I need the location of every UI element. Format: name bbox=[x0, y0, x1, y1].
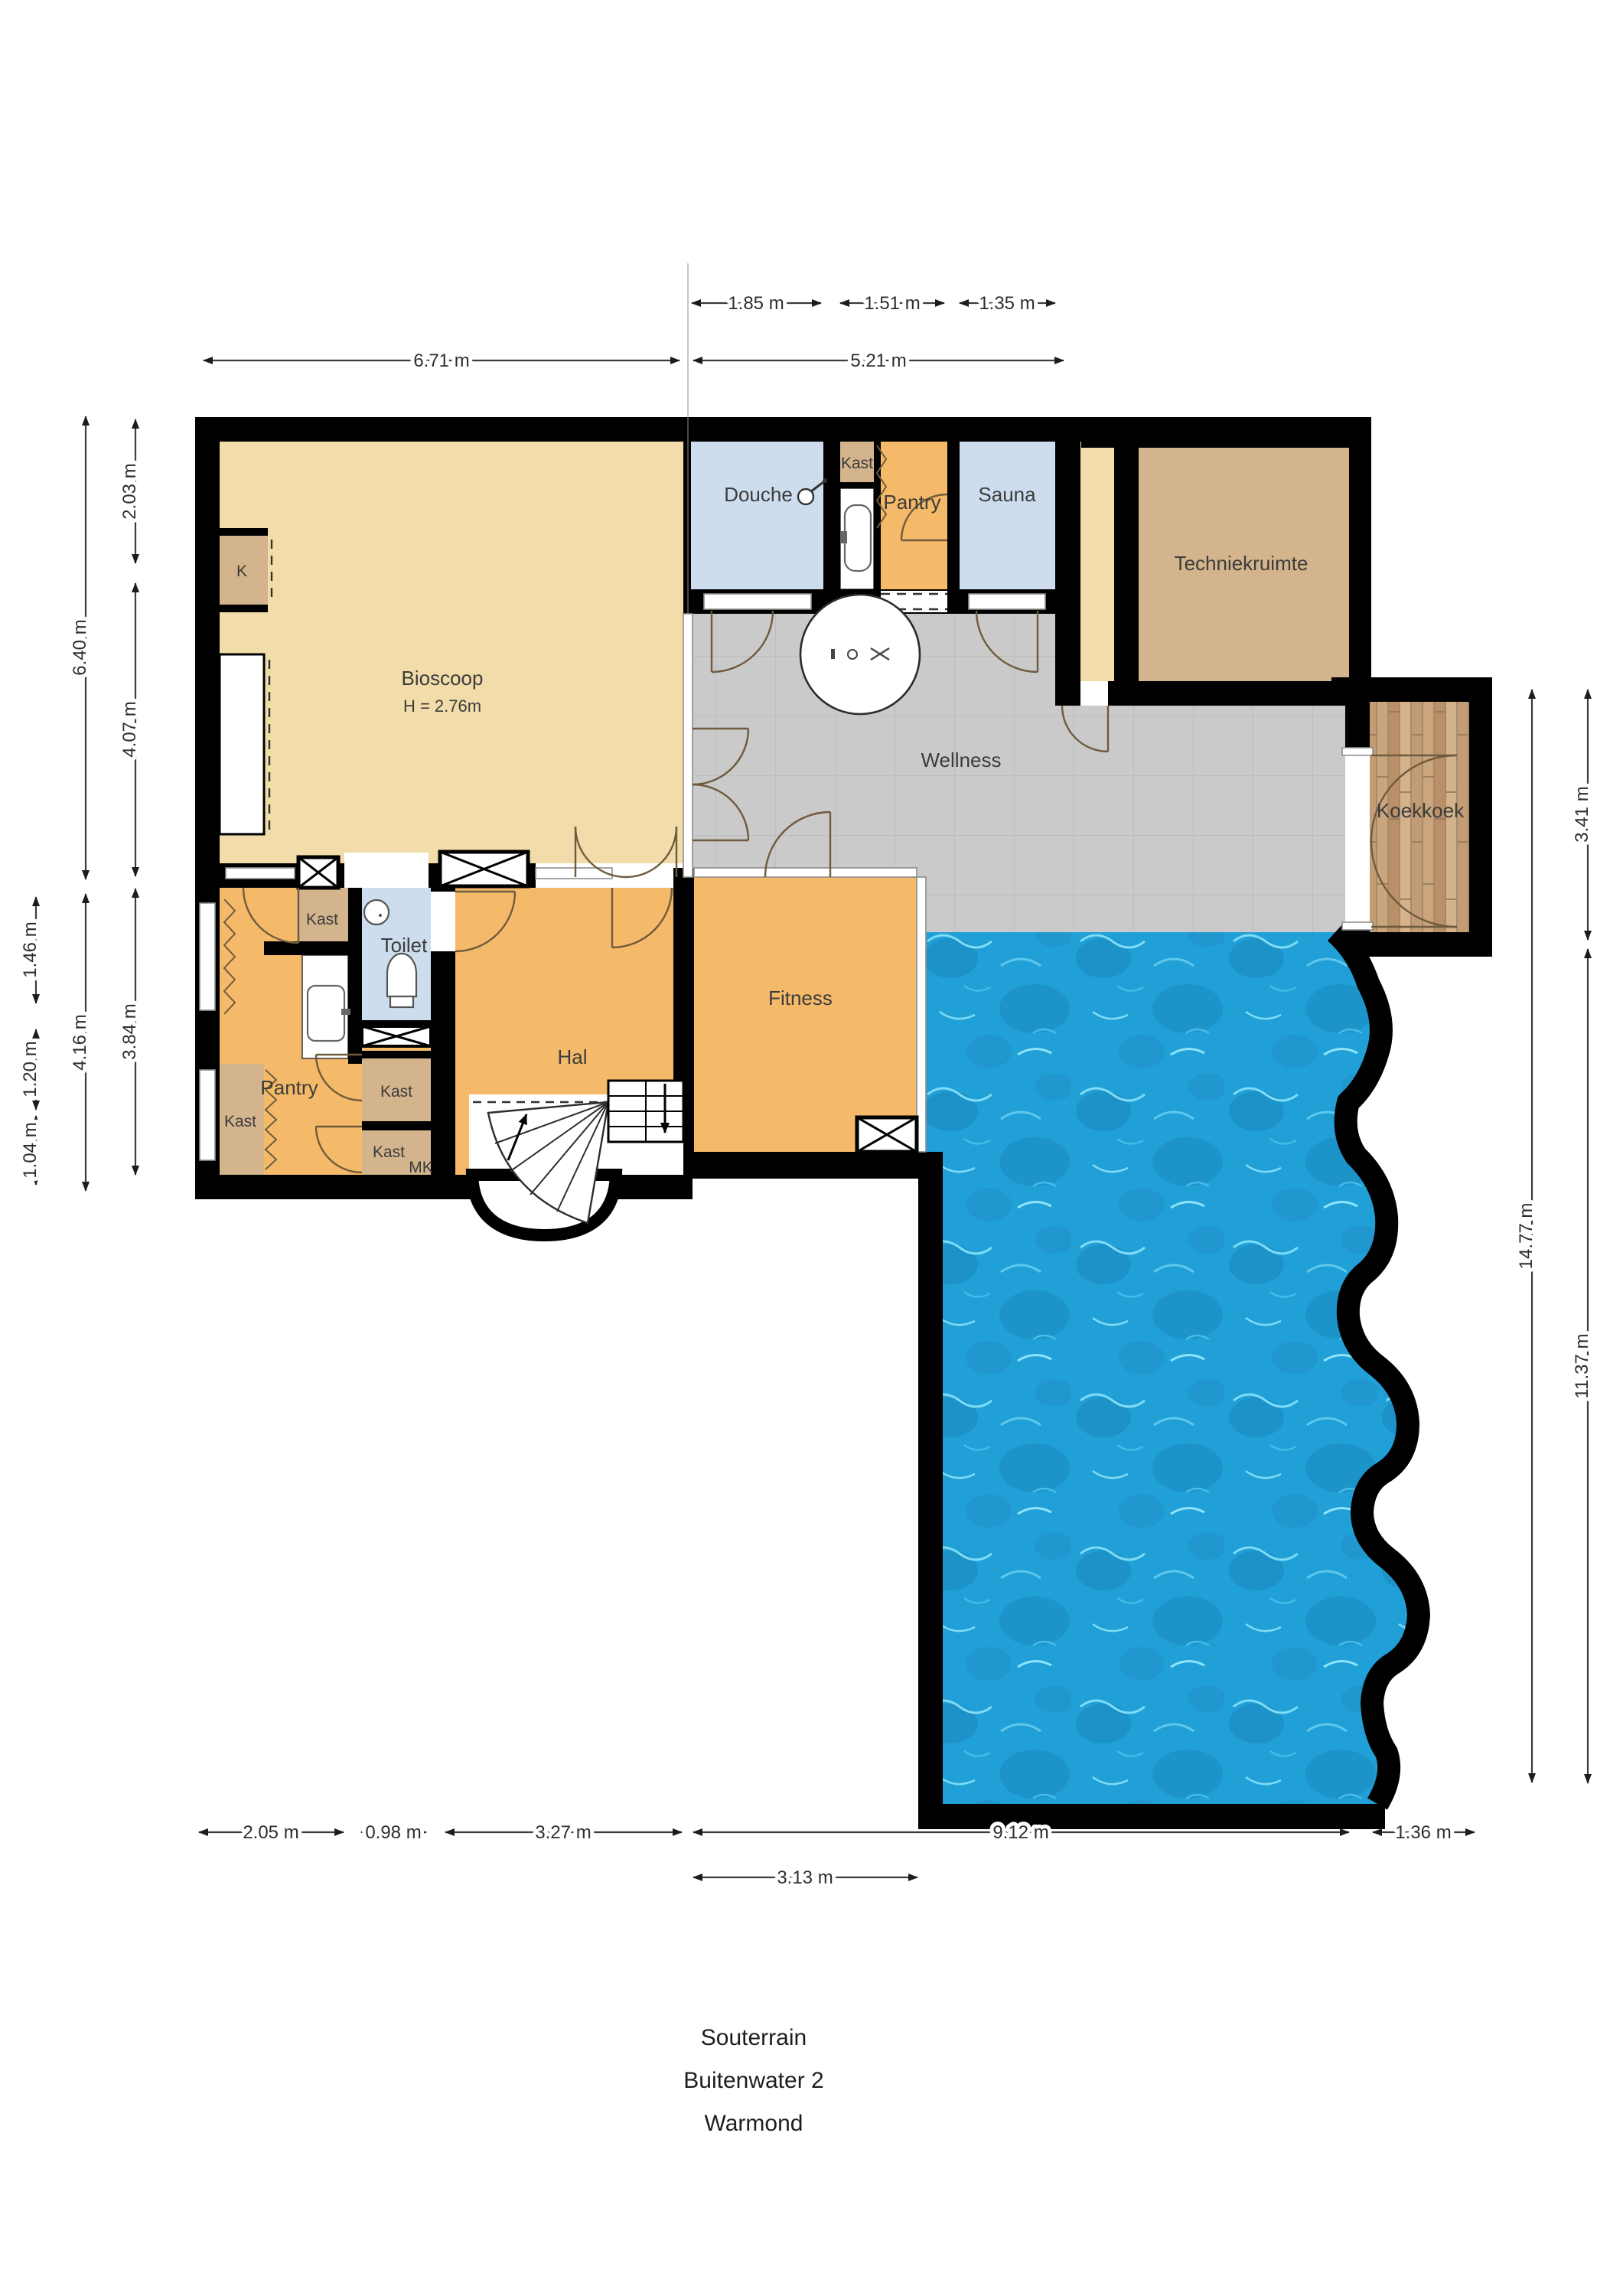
dimension: 3.41 m bbox=[1572, 690, 1592, 940]
toilet-door-gap bbox=[431, 892, 455, 951]
room-sauna-floor bbox=[960, 442, 1055, 589]
washbasin-icon bbox=[840, 505, 871, 571]
wall-segment bbox=[1331, 677, 1492, 702]
straight-stair-icon bbox=[608, 1081, 683, 1142]
svg-text:0.98 m: 0.98 m bbox=[365, 1822, 421, 1843]
room-label-pantry-boven: Pantry bbox=[883, 491, 940, 514]
dimension: 5.21 m bbox=[693, 351, 1064, 371]
svg-text:9.12 m: 9.12 m bbox=[992, 1822, 1048, 1843]
vent-shaft-icon bbox=[362, 1026, 431, 1046]
wall-segment bbox=[918, 1179, 943, 1829]
room-label-kast-midden: Kast bbox=[380, 1083, 412, 1101]
dimension: 1.04 m bbox=[20, 1116, 41, 1185]
svg-text:1.35 m: 1.35 m bbox=[979, 293, 1035, 314]
title-city: Warmond bbox=[705, 2111, 803, 2136]
room-label-hal: Hal bbox=[557, 1045, 587, 1068]
dimension: 4.07 m bbox=[119, 583, 140, 876]
wall-segment bbox=[220, 605, 268, 612]
svg-text:1.36 m: 1.36 m bbox=[1395, 1822, 1451, 1843]
wall-segment bbox=[362, 1121, 431, 1130]
dimension: 3.84 m bbox=[119, 889, 140, 1175]
wall-segment bbox=[264, 941, 348, 955]
vent-shaft-icon bbox=[857, 1117, 917, 1152]
room-label-fitness: Fitness bbox=[768, 987, 833, 1009]
vent-shaft-icon bbox=[298, 857, 338, 888]
wall-segment bbox=[823, 442, 840, 589]
vestibule-door-gap bbox=[1080, 681, 1108, 706]
stairs bbox=[469, 1081, 683, 1235]
room-label-kast-onder: Kast bbox=[373, 1143, 405, 1161]
title-floor: Souterrain bbox=[701, 2025, 807, 2050]
plan-title: Souterrain Buitenwater 2 Warmond bbox=[683, 2025, 823, 2136]
wall-segment bbox=[362, 1051, 431, 1058]
vestibule-floor bbox=[1080, 442, 1114, 681]
window bbox=[969, 594, 1045, 609]
glass-wall bbox=[683, 614, 693, 877]
window bbox=[704, 594, 811, 609]
wall-segment bbox=[840, 482, 874, 488]
wall-segment bbox=[672, 1152, 943, 1179]
dimension: 1.46 m bbox=[20, 897, 41, 1003]
door-jamb bbox=[1342, 748, 1373, 755]
room-pantry-boven-floor bbox=[881, 442, 947, 589]
dimension: 3.27 m bbox=[445, 1822, 682, 1843]
svg-text:3.13 m: 3.13 m bbox=[777, 1867, 833, 1888]
dimension: 1.36 m bbox=[1373, 1822, 1475, 1843]
swimming-pool bbox=[926, 932, 1419, 1804]
svg-text:14.77 m: 14.77 m bbox=[1516, 1203, 1537, 1270]
svg-text:4.07 m: 4.07 m bbox=[119, 701, 140, 757]
title-address: Buitenwater 2 bbox=[683, 2068, 823, 2093]
wall-niche bbox=[220, 654, 264, 834]
room-bioscoop-floor bbox=[220, 442, 683, 863]
room-label-kast-kolom-boven: Kast bbox=[306, 911, 338, 928]
wall-segment bbox=[683, 442, 691, 589]
floor-plan-canvas: Bioscoop H = 2.76m K Douche Kast Pantry … bbox=[0, 0, 1623, 2296]
wall-segment bbox=[918, 1804, 1385, 1829]
wall-segment bbox=[947, 442, 960, 589]
wall-segment bbox=[348, 888, 362, 1064]
dimension: 2.03 m bbox=[119, 419, 140, 563]
room-label-mk: MK bbox=[409, 1159, 433, 1176]
koekkoek-door-gap bbox=[1345, 755, 1370, 922]
svg-text:1.04 m: 1.04 m bbox=[20, 1122, 41, 1178]
niche-box bbox=[344, 853, 429, 888]
svg-text:1.20 m: 1.20 m bbox=[20, 1041, 41, 1097]
room-label-kast-boven: Kast bbox=[841, 455, 873, 472]
room-label-sauna: Sauna bbox=[978, 483, 1036, 506]
svg-text:1.51 m: 1.51 m bbox=[864, 293, 920, 314]
glass-wall bbox=[917, 877, 926, 1152]
room-douche-floor bbox=[691, 442, 823, 589]
wall-segment bbox=[1349, 417, 1371, 677]
dimension: 0.98 m bbox=[361, 1822, 426, 1843]
room-label-toilet: Toilet bbox=[381, 934, 428, 957]
whirlpool-icon bbox=[800, 595, 920, 714]
room-fitness-floor bbox=[694, 877, 917, 1152]
window bbox=[226, 868, 295, 879]
wall-segment bbox=[220, 528, 268, 536]
svg-text:3.27 m: 3.27 m bbox=[535, 1822, 591, 1843]
wall-segment bbox=[1469, 702, 1492, 957]
svg-text:6.71 m: 6.71 m bbox=[413, 351, 469, 371]
svg-text:1.46 m: 1.46 m bbox=[20, 921, 41, 977]
svg-text:4.16 m: 4.16 m bbox=[70, 1014, 90, 1070]
svg-text:3.84 m: 3.84 m bbox=[119, 1003, 140, 1059]
wall-segment bbox=[1114, 442, 1139, 681]
window bbox=[200, 903, 215, 1010]
dimension: 14.77 m bbox=[1516, 690, 1537, 1782]
wall-segment bbox=[195, 417, 1081, 442]
dimension: 6.71 m bbox=[204, 351, 680, 371]
room-label-pantry: Pantry bbox=[260, 1076, 318, 1099]
door-jamb bbox=[1342, 922, 1373, 930]
dimension: 1.85 m bbox=[692, 293, 821, 314]
room-label-k: K bbox=[236, 563, 247, 580]
wall-segment bbox=[1055, 442, 1080, 681]
room-label-wellness: Wellness bbox=[921, 748, 1001, 771]
wall-segment bbox=[1345, 932, 1492, 957]
room-note-bioscoop-height: H = 2.76m bbox=[403, 696, 481, 716]
pool-water bbox=[926, 932, 1419, 1804]
dimension: 11.37 m bbox=[1572, 949, 1592, 1783]
dimension: 1.51 m bbox=[840, 293, 944, 314]
glass-wall bbox=[694, 868, 917, 877]
room-label-douche: Douche bbox=[724, 483, 793, 506]
svg-text:3.41 m: 3.41 m bbox=[1572, 786, 1592, 842]
dimension: 1.35 m bbox=[960, 293, 1055, 314]
svg-text:11.37 m: 11.37 m bbox=[1572, 1334, 1592, 1399]
svg-text:1.85 m: 1.85 m bbox=[728, 293, 784, 314]
svg-text:5.21 m: 5.21 m bbox=[850, 351, 906, 371]
dimension: 6.40 m bbox=[70, 416, 90, 879]
dimension: 2.05 m bbox=[199, 1822, 344, 1843]
dimension: 3.13 m bbox=[693, 1867, 917, 1888]
sink-icon bbox=[308, 986, 350, 1041]
wall-segment bbox=[874, 442, 881, 589]
room-label-koekkoek: Koekkoek bbox=[1377, 799, 1465, 822]
vent-shaft-icon bbox=[440, 852, 528, 886]
room-label-techniekruimte: Techniekruimte bbox=[1175, 552, 1309, 575]
svg-text:2.03 m: 2.03 m bbox=[119, 463, 140, 519]
svg-text:6.40 m: 6.40 m bbox=[70, 619, 90, 675]
room-label-bioscoop: Bioscoop bbox=[402, 667, 484, 690]
dimension: 1.20 m bbox=[20, 1029, 41, 1110]
window bbox=[200, 1070, 215, 1160]
svg-text:2.05 m: 2.05 m bbox=[243, 1822, 298, 1843]
room-label-kast-links: Kast bbox=[224, 1113, 256, 1130]
dimension: 4.16 m bbox=[70, 894, 90, 1191]
